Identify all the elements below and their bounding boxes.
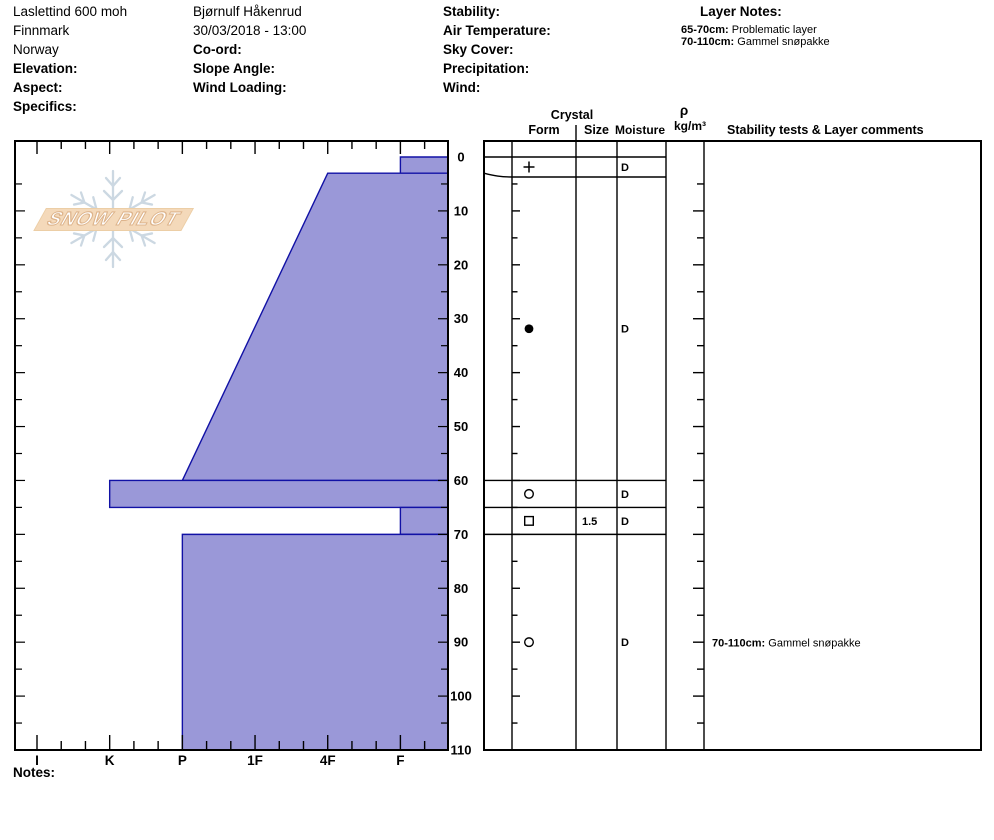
grain-form-precip-icon: [524, 162, 535, 173]
depth-connector-line: [484, 173, 512, 177]
layer-table-columns: [512, 125, 704, 750]
moisture-value: D: [621, 162, 629, 174]
hardness-axis-labels: IKP1F4FF: [35, 753, 404, 768]
depth-tick-label: 70: [454, 527, 468, 542]
moisture-value: D: [621, 516, 629, 528]
snowpilot-logo-banner: SNOW PILOT: [33, 208, 194, 231]
depth-tick-label: 100: [450, 689, 472, 704]
snow-layer: [182, 534, 448, 750]
moisture-value: D: [621, 324, 629, 336]
notes-label: Notes:: [13, 764, 55, 782]
grain-form-rounded-icon: [525, 324, 534, 333]
depth-tick-label: 50: [454, 419, 468, 434]
layer-table-frame: [484, 141, 981, 750]
snowpilot-logo-text: SNOW PILOT: [35, 209, 193, 230]
layer-comment: 70-110cm: Gammel snøpakke: [712, 637, 861, 649]
hardness-tick-label: 4F: [320, 753, 336, 768]
hardness-tick-label: 1F: [247, 753, 263, 768]
depth-tick-label: 30: [454, 311, 468, 326]
hardness-tick-label: K: [105, 753, 115, 768]
depth-tick-label: 80: [454, 581, 468, 596]
hardness-tick-label: P: [178, 753, 187, 768]
depth-tick-label: 90: [454, 635, 468, 650]
snowpilot-profile-page: Laslettind 600 moh Finnmark Norway Eleva…: [0, 0, 994, 840]
depth-tick-label: 110: [451, 743, 472, 758]
depth-tick-label: 20: [454, 257, 468, 272]
grain-form-facet-icon: [525, 517, 534, 526]
depth-tick-label: 40: [454, 365, 468, 380]
depth-axis-labels: 0102030405060708090100110: [450, 150, 472, 758]
snow-layers: [110, 157, 448, 750]
hardness-tick-label: F: [396, 753, 404, 768]
grain-size-value: 1.5: [582, 516, 597, 528]
layer-table-cells: DDD1.5DD70-110cm: Gammel snøpakke: [524, 162, 861, 650]
moisture-value: D: [621, 637, 629, 649]
snow-layer: [400, 507, 448, 534]
snow-layer: [182, 173, 448, 480]
grain-form-melt-icon: [525, 490, 534, 499]
snow-profile-figure: 0102030405060708090100110IKP1F4FFDDD1.5D…: [0, 0, 994, 840]
snow-layer: [400, 157, 448, 173]
moisture-value: D: [621, 489, 629, 501]
grain-form-melt-icon: [525, 638, 534, 647]
depth-tick-label: 60: [454, 473, 468, 488]
depth-tick-label: 0: [457, 150, 464, 165]
depth-tick-label: 10: [454, 203, 468, 218]
snow-layer: [110, 480, 448, 507]
